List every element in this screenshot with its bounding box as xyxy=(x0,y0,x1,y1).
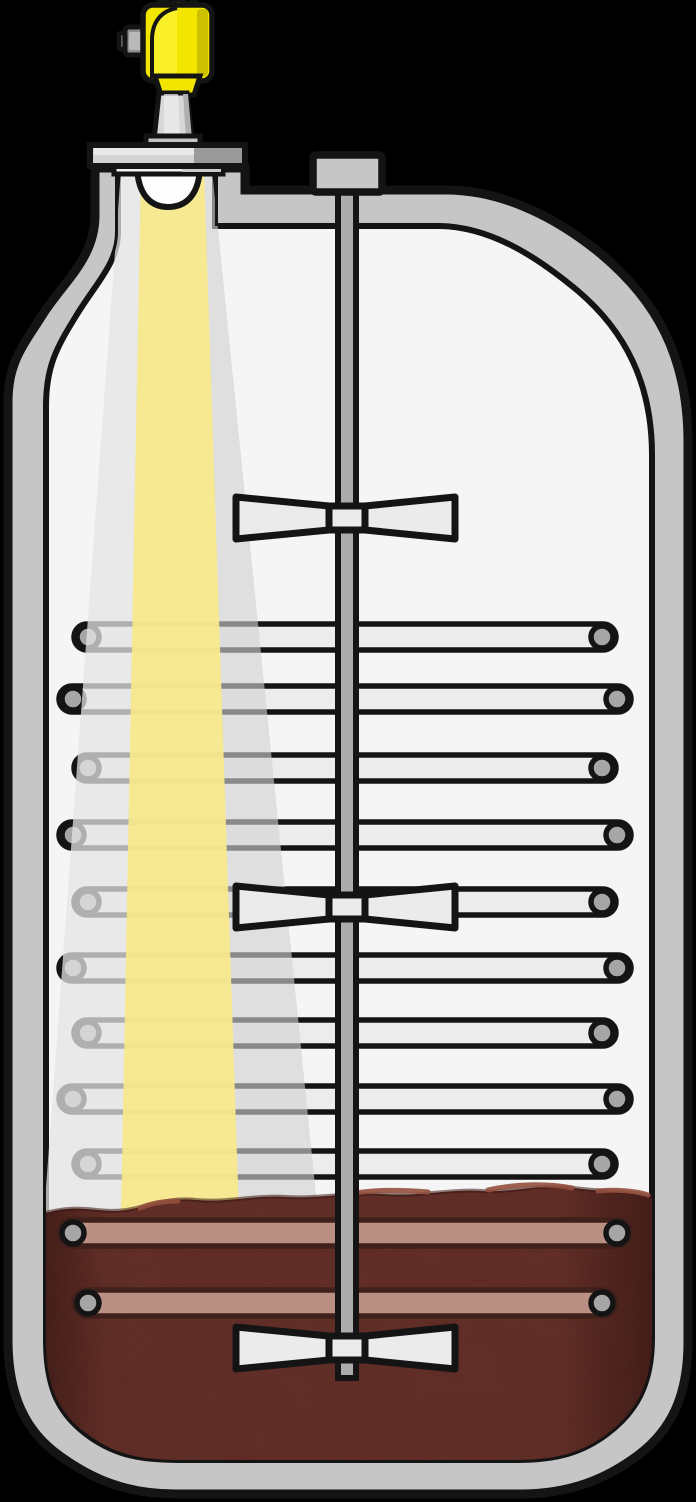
coil-end-cap xyxy=(591,1022,613,1044)
coil-end-cap xyxy=(606,688,628,710)
blade-hub xyxy=(329,1336,365,1360)
vessel-diagram xyxy=(0,0,696,1502)
coil-end-cap xyxy=(77,1292,99,1314)
neck-highlight xyxy=(164,94,180,139)
coil-end-cap xyxy=(606,957,628,979)
blade-right xyxy=(365,1327,455,1369)
coil-end-cap xyxy=(62,688,84,710)
coil-end-cap xyxy=(606,824,628,846)
coil-end-cap xyxy=(62,1222,84,1244)
coil-end-cap xyxy=(591,891,613,913)
agitator-shaft xyxy=(338,190,356,1378)
blade-hub xyxy=(329,506,365,530)
coil-end-cap xyxy=(591,757,613,779)
blade-left xyxy=(236,497,329,539)
agitator-blade xyxy=(236,497,455,539)
mounting-flange xyxy=(90,145,245,174)
agitator-drive-mount xyxy=(313,155,382,192)
coil-end-cap xyxy=(591,626,613,648)
blade-right xyxy=(365,497,455,539)
blade-hub xyxy=(329,895,365,919)
coil-end-cap xyxy=(606,1088,628,1110)
blade-right xyxy=(365,886,455,928)
agitator-blade xyxy=(236,886,455,928)
radar-level-sensor xyxy=(119,0,212,147)
housing-shade xyxy=(197,9,208,76)
coil-end-cap xyxy=(591,1153,613,1175)
flange-bevel xyxy=(94,148,194,155)
agitator-blade xyxy=(236,1327,455,1369)
diagram-stage xyxy=(0,0,696,1502)
coil-end-cap xyxy=(606,1222,628,1244)
flange-shade xyxy=(194,148,242,163)
coil-end-cap xyxy=(591,1292,613,1314)
blade-left xyxy=(236,1327,329,1369)
blade-left xyxy=(236,886,329,928)
